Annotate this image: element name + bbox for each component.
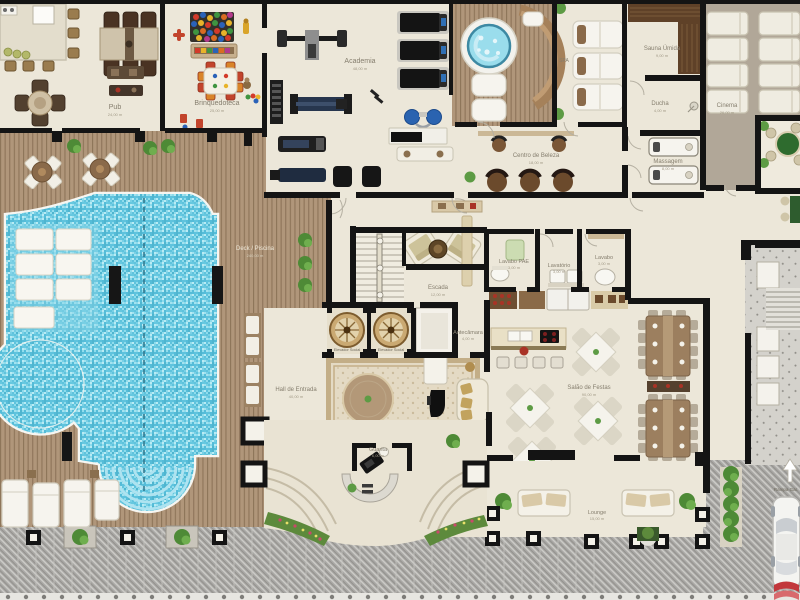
svg-text:Pub: Pub bbox=[109, 104, 122, 111]
svg-text:4,00 m: 4,00 m bbox=[462, 336, 475, 341]
svg-text:9,00 m: 9,00 m bbox=[656, 53, 669, 58]
svg-text:Escada: Escada bbox=[428, 285, 449, 291]
svg-text:6,00 m: 6,00 m bbox=[372, 453, 385, 458]
svg-text:Elevador Social: Elevador Social bbox=[334, 348, 361, 352]
svg-text:40,00 m: 40,00 m bbox=[289, 394, 304, 399]
svg-text:26,00 m: 26,00 m bbox=[720, 110, 735, 115]
svg-text:18,00 m: 18,00 m bbox=[529, 160, 544, 165]
svg-text:Hall de Entrada: Hall de Entrada bbox=[275, 387, 317, 393]
svg-text:3,00 m: 3,00 m bbox=[508, 265, 521, 270]
svg-text:25,00 m: 25,00 m bbox=[210, 108, 225, 113]
svg-text:3,00 m: 3,00 m bbox=[553, 269, 566, 274]
svg-text:Academia: Academia bbox=[344, 58, 375, 65]
svg-text:4,00 m: 4,00 m bbox=[654, 108, 667, 113]
svg-text:Elevador Social: Elevador Social bbox=[378, 348, 405, 352]
svg-text:Massagem: Massagem bbox=[653, 159, 682, 165]
svg-text:Deck / Piscina: Deck / Piscina bbox=[236, 246, 275, 252]
svg-text:Cinema: Cinema bbox=[717, 103, 738, 109]
svg-text:Centro de Beleza: Centro de Beleza bbox=[513, 153, 560, 159]
svg-text:8,00 m: 8,00 m bbox=[662, 166, 675, 171]
svg-text:SPA: SPA bbox=[559, 58, 569, 64]
svg-text:Sauna Úmida: Sauna Úmida bbox=[644, 45, 681, 52]
svg-text:24,00 m: 24,00 m bbox=[108, 112, 123, 117]
svg-text:3,00 m: 3,00 m bbox=[598, 261, 611, 266]
svg-text:240,00 m: 240,00 m bbox=[247, 253, 264, 258]
svg-text:Ducha: Ducha bbox=[651, 101, 669, 107]
svg-text:15,00 m: 15,00 m bbox=[590, 516, 605, 521]
svg-text:48,00 m: 48,00 m bbox=[353, 66, 368, 71]
svg-text:Brinquedoteca: Brinquedoteca bbox=[194, 100, 239, 107]
svg-text:Salão de Festas: Salão de Festas bbox=[567, 385, 610, 391]
svg-text:90,00 m: 90,00 m bbox=[582, 392, 597, 397]
svg-text:Rampa Gar.: Rampa Gar. bbox=[774, 487, 798, 492]
svg-text:12,00 m: 12,00 m bbox=[431, 292, 446, 297]
